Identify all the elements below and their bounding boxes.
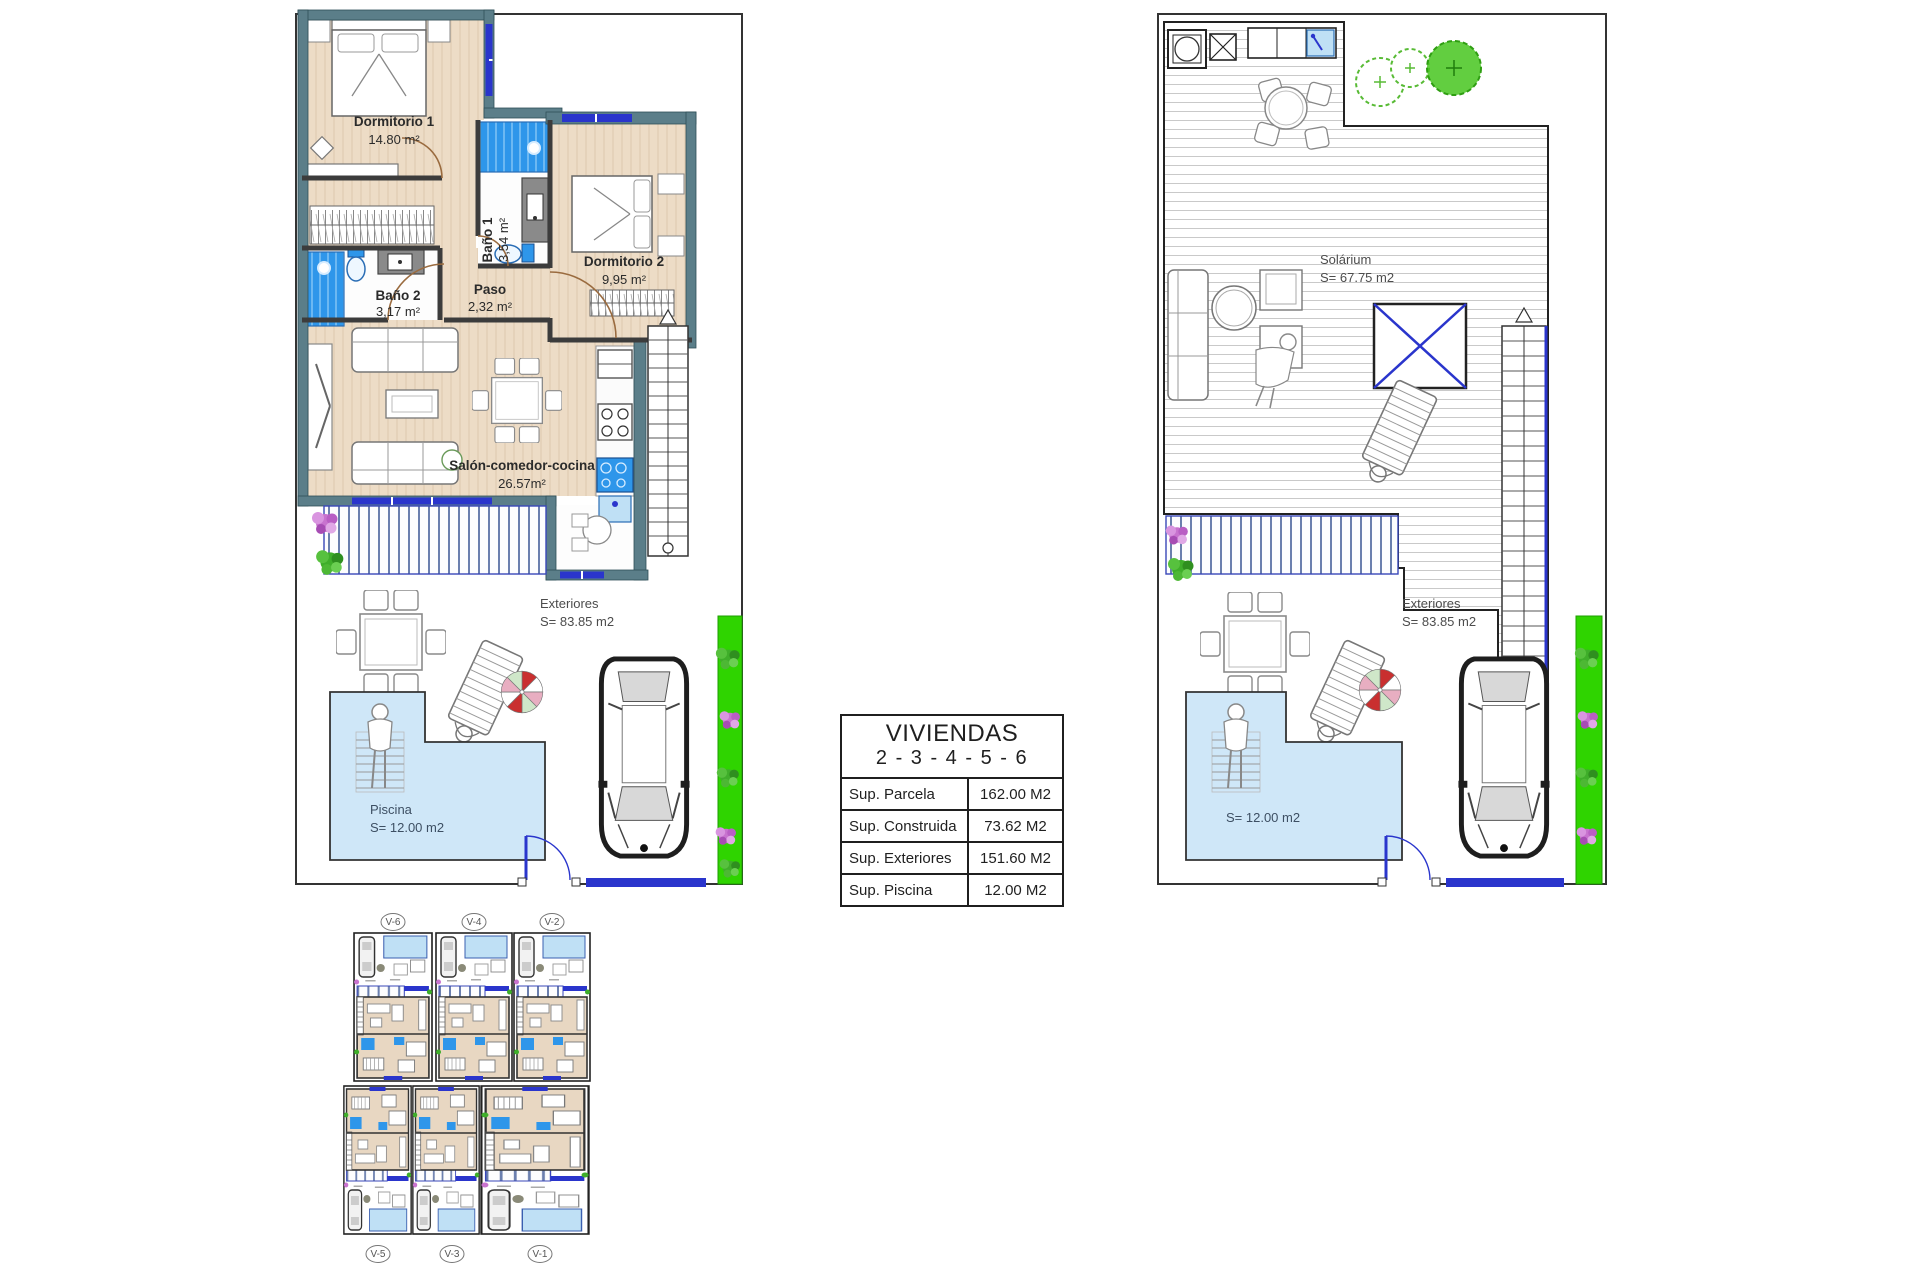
room-area: 26.57m²	[498, 476, 546, 491]
room-label: Dormitorio 2	[584, 254, 664, 269]
stairs-icon	[648, 310, 688, 556]
unit-plan	[514, 933, 590, 1081]
unit-label: V-1	[532, 1249, 547, 1260]
door-jamb	[572, 878, 580, 886]
row-label: Sup. Parcela	[842, 779, 969, 809]
door-jamb	[518, 878, 526, 886]
kitchen	[596, 346, 634, 522]
page: Dormitorio 1 14.80 m² Baño 1 3,54 m² Dor…	[0, 0, 1920, 1280]
unit-plan	[481, 1086, 588, 1234]
table-subtitle: 2 - 3 - 4 - 5 - 6	[842, 747, 1062, 770]
unit-plan	[436, 933, 512, 1081]
door-jamb	[1432, 878, 1440, 886]
unit-label: V-3	[444, 1249, 459, 1260]
table-title: VIVIENDAS	[842, 721, 1062, 747]
pool-label: Piscina	[370, 802, 413, 817]
room-area: 3,17 m²	[376, 304, 421, 319]
room-label: Paso	[474, 282, 506, 297]
pergola-icon	[1166, 516, 1398, 574]
row-label: Sup. Piscina	[842, 875, 969, 905]
person-icon	[1280, 334, 1296, 350]
car-icon	[1458, 659, 1549, 856]
unit-label: V-5	[370, 1249, 385, 1260]
summary-table: VIVIENDAS 2 - 3 - 4 - 5 - 6 Sup. Parcela…	[840, 714, 1064, 907]
car-gate-icon	[586, 878, 706, 887]
exterior-area: S= 83.85 m2	[1402, 614, 1476, 629]
tv-unit-icon	[308, 344, 332, 470]
room-area: 14.80 m²	[368, 132, 420, 147]
table-row: Sup. Construida 73.62 M2	[842, 811, 1062, 843]
row-label: Sup. Exteriores	[842, 843, 969, 873]
ground-floor-plan: Dormitorio 1 14.80 m² Baño 1 3,54 m² Dor…	[294, 8, 744, 888]
sofa-icon	[352, 328, 458, 372]
unit-plan	[354, 933, 432, 1081]
solarium-area: S= 67.75 m2	[1320, 270, 1394, 285]
solarium-label: Solárium	[1320, 252, 1371, 267]
unit-label: V-4	[466, 917, 481, 928]
unit-label: V-2	[544, 917, 559, 928]
row-value: 151.60 M2	[969, 843, 1062, 873]
room-label: Salón-comedor-cocina	[449, 458, 595, 473]
exterior-label: Exteriores	[1402, 596, 1461, 611]
row-value: 12.00 M2	[969, 875, 1062, 905]
table-row: Sup. Parcela 162.00 M2	[842, 779, 1062, 811]
row-label: Sup. Construida	[842, 811, 969, 841]
dishwasher-icon	[597, 458, 633, 492]
exterior-area: S= 83.85 m2	[540, 614, 614, 629]
sofa-icon	[1168, 270, 1208, 400]
sink-icon	[1307, 30, 1334, 56]
room-label: Dormitorio 1	[354, 114, 435, 129]
summary-table-header: VIVIENDAS 2 - 3 - 4 - 5 - 6	[842, 716, 1062, 779]
unit-label: V-6	[385, 917, 400, 928]
round-table-icon	[1212, 286, 1256, 330]
row-value: 73.62 M2	[969, 811, 1062, 841]
unit-plan	[344, 1086, 411, 1234]
car-icon	[598, 659, 689, 856]
table-row: Sup. Exteriores 151.60 M2	[842, 843, 1062, 875]
room-label: Baño 1	[480, 217, 495, 263]
pergola-skylight-icon	[1374, 304, 1466, 388]
solarium-plan: Solárium S= 67.75 m2 Exteriores S= 83.85…	[1156, 8, 1611, 888]
pergola-icon	[324, 506, 546, 574]
pool-area-label: S= 12.00 m2	[370, 820, 444, 835]
pool-area-label: S= 12.00 m2	[1226, 810, 1300, 825]
exterior-label: Exteriores	[540, 596, 599, 611]
toilet-icon	[347, 257, 365, 281]
room-area: 3,54 m²	[496, 217, 511, 262]
door-jamb	[1378, 878, 1386, 886]
room-label: Baño 2	[375, 288, 420, 303]
site-plan: V-6 V-4 V-2 V-5 V-3 V-1	[340, 912, 596, 1272]
room-area: 9,95 m²	[602, 272, 647, 287]
room-area: 2,32 m²	[468, 299, 513, 314]
coffee-table-icon	[386, 390, 438, 418]
table-row: Sup. Piscina 12.00 M2	[842, 875, 1062, 905]
row-value: 162.00 M2	[969, 779, 1062, 809]
umbrella-icon	[1359, 669, 1401, 711]
unit-plan	[413, 1086, 479, 1234]
umbrella-icon	[501, 671, 543, 713]
car-gate-icon	[1446, 878, 1564, 887]
